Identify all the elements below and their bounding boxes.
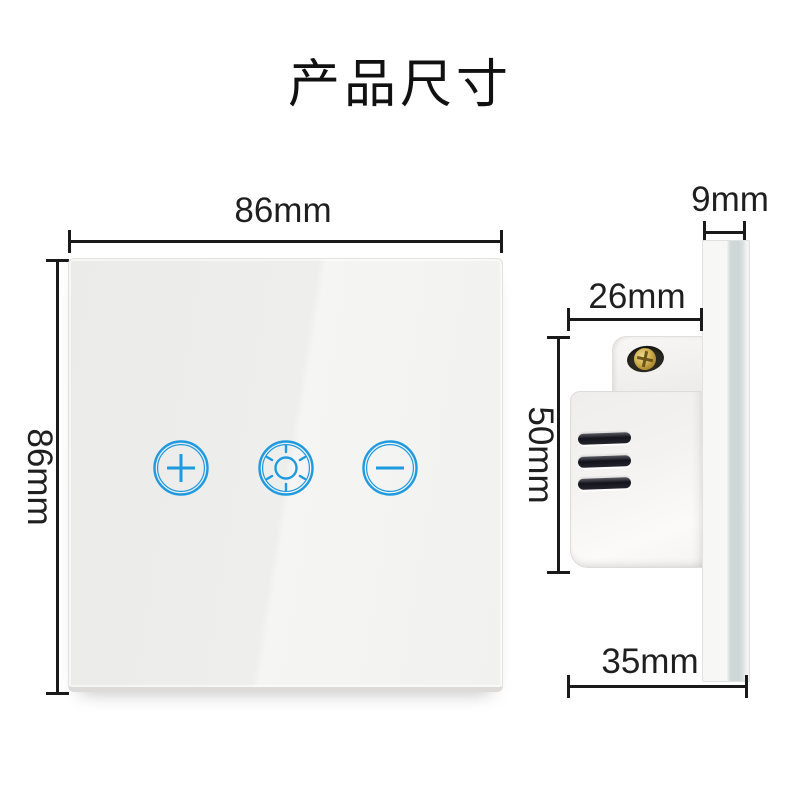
page-title: 产品尺寸 [0, 42, 800, 117]
glass-thickness-dimension-label: 9mm [691, 180, 769, 220]
mechanism-height-dimension-line [557, 336, 560, 574]
glass-thickness-dimension-line [703, 231, 746, 234]
total-depth-dimension-label: 35mm [601, 642, 698, 682]
sun-icon [256, 438, 316, 498]
front-height-dimension-line [56, 259, 59, 695]
total-depth-dimension-line [567, 685, 748, 688]
vent-slot [578, 455, 631, 468]
minus-icon [360, 438, 420, 498]
touch-button-brightness [256, 438, 316, 498]
vent-slot [578, 477, 631, 490]
front-height-dimension-label: 86mm [19, 428, 59, 525]
plus-icon [151, 438, 211, 498]
touch-button-dim-decrease [360, 438, 420, 498]
touch-button-dim-increase [151, 438, 211, 498]
product-dimensions-figure: 产品尺寸 86mm 86mm [0, 0, 800, 800]
front-width-dimension-line [68, 240, 503, 243]
front-width-dimension-label: 86mm [234, 191, 331, 231]
screw [633, 347, 658, 372]
mechanism-depth-dimension-label: 26mm [588, 277, 685, 317]
mechanism-height-dimension-label: 50mm [520, 406, 560, 503]
glass-panel-side-edge [702, 240, 750, 682]
mechanism-depth-dimension-line [567, 318, 703, 321]
vent-slot [578, 432, 631, 445]
